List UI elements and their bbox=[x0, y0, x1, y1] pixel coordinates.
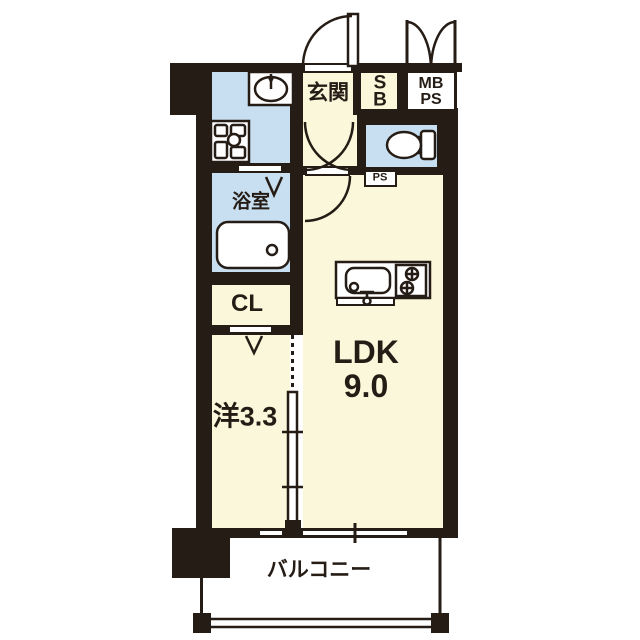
bathroom-label: 浴室 bbox=[232, 193, 270, 212]
washbasin-icon bbox=[249, 72, 293, 105]
balcony-label: バルコニー bbox=[267, 560, 372, 581]
mbps-label-line1: MB bbox=[419, 76, 444, 92]
floor-plan: 玄関 S B MB PS 浴室 PS CL LDK 9.0 洋3.3 バルコニー bbox=[0, 0, 640, 640]
bathtub-icon bbox=[217, 222, 289, 268]
genkan-label: 玄関 bbox=[307, 83, 349, 104]
ldk-door-swing-icon bbox=[305, 176, 350, 221]
western-room-label: 洋3.3 bbox=[213, 404, 278, 431]
mbps-label-line2: PS bbox=[420, 92, 441, 108]
hallway-door-swings-icon bbox=[305, 122, 353, 170]
toilet-icon bbox=[387, 131, 435, 159]
double-door-swing-icon bbox=[407, 20, 455, 70]
sliding-partition-icon bbox=[282, 335, 303, 537]
entrance-door-swing-icon bbox=[303, 14, 358, 66]
washing-machine-pan-icon bbox=[211, 121, 249, 162]
closet-door-mark-icon bbox=[246, 336, 262, 353]
balcony-railing-icon bbox=[193, 538, 449, 633]
ldk-label-line2: 9.0 bbox=[344, 370, 388, 402]
closet-label: CL bbox=[231, 292, 263, 316]
ldk-label-line1: LDK bbox=[333, 336, 399, 368]
pipe-space-label: PS bbox=[373, 173, 388, 184]
shoe-box-label-line2: B bbox=[373, 91, 387, 110]
